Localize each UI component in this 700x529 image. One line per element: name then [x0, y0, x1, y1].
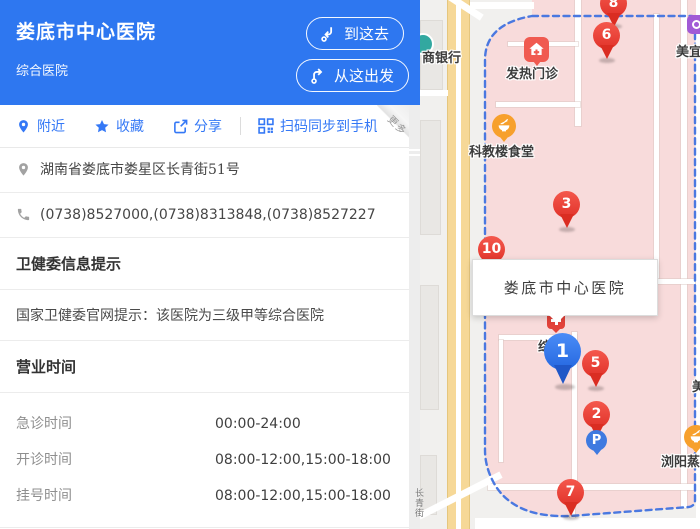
- fever-clinic-icon[interactable]: [524, 37, 549, 62]
- route-from-here-button[interactable]: 从这出发: [296, 59, 409, 92]
- campus-road: [496, 102, 580, 107]
- hours-row-clinic: 开诊时间08:00-12:00,15:00-18:00: [0, 441, 409, 477]
- map-building-block: [420, 120, 441, 235]
- store2-label[interactable]: 美: [692, 376, 700, 395]
- campus-road: [488, 484, 695, 490]
- baidu-map-poi-page: 商银行 发热门诊 科教楼食堂 美宜 美 浏阳蒸: [0, 0, 700, 529]
- health-commission-content: 国家卫健委官网提示：该医院为三级甲等综合医院: [0, 290, 409, 341]
- address-text: 湖南省娄底市娄星区长青街51号: [40, 160, 240, 180]
- route-to-here-button[interactable]: 到这去: [306, 17, 404, 50]
- bank-label[interactable]: 商银行: [422, 47, 461, 66]
- map-marker-1-current[interactable]: 1: [544, 333, 582, 387]
- side-road: [420, 90, 448, 96]
- scrollbar-notch: [409, 154, 420, 156]
- poi-title: 娄底市中心医院: [16, 17, 156, 44]
- map-marker-6[interactable]: 6: [593, 22, 621, 60]
- map-marker-5[interactable]: 5: [582, 350, 610, 388]
- bottom-road: [475, 518, 700, 529]
- hours-row-emergency: 急诊时间00:00-24:00: [0, 405, 409, 441]
- star-icon: [94, 119, 110, 134]
- top-road: [470, 2, 534, 9]
- sync-to-phone-action[interactable]: 扫码同步到手机: [258, 116, 378, 136]
- panel-body: 附近 收藏 分享: [0, 105, 409, 528]
- nearby-action[interactable]: 附近: [16, 116, 65, 136]
- yellow-road: [447, 0, 470, 529]
- map-building-block: [420, 285, 439, 410]
- favorite-action[interactable]: 收藏: [94, 116, 144, 136]
- bowl-icon: [496, 118, 512, 134]
- business-hours-title: 营业时间: [0, 341, 409, 393]
- address-pin-icon: [16, 162, 31, 177]
- panel-header: 娄底市中心医院 综合医院 到这去 从这出发: [0, 0, 420, 105]
- campus-road: [654, 14, 659, 283]
- campus-road: [499, 340, 503, 462]
- health-commission-title: 卫健委信息提示: [0, 238, 409, 290]
- phone-icon: [16, 207, 31, 222]
- hospital-infobox[interactable]: 娄底市中心医院: [472, 259, 658, 316]
- scrollbar-notch: [409, 149, 420, 151]
- street-name-label: 长青街: [412, 488, 425, 518]
- qr-code-icon: [258, 118, 274, 134]
- action-divider: [240, 117, 241, 135]
- route-to-icon: [319, 25, 337, 43]
- share-icon: [173, 119, 188, 134]
- route-from-icon: [309, 67, 327, 85]
- map-canvas[interactable]: 商银行 发热门诊 科教楼食堂 美宜 美 浏阳蒸: [420, 0, 700, 529]
- location-pin-icon: [16, 119, 31, 134]
- poi-category: 综合医院: [16, 60, 68, 79]
- panel-scrollbar[interactable]: [409, 105, 420, 529]
- parking-icon[interactable]: P: [586, 430, 607, 451]
- share-action[interactable]: 分享: [173, 116, 222, 136]
- address-row[interactable]: 湖南省娄底市娄星区长青街51号: [0, 148, 409, 193]
- phone-row[interactable]: (0738)8527000,(0738)8313848,(0738)852722…: [0, 193, 409, 238]
- house-cross-icon: [527, 40, 546, 59]
- business-hours-table: 急诊时间00:00-24:00 开诊时间08:00-12:00,15:00-18…: [0, 393, 409, 528]
- poi-detail-panel: 娄底市中心医院 综合医院 到这去 从这出发: [0, 0, 420, 529]
- fever-clinic-label[interactable]: 发热门诊: [506, 63, 558, 82]
- restaurant-label[interactable]: 浏阳蒸: [661, 451, 700, 470]
- campus-road: [575, 0, 581, 126]
- map-marker-3[interactable]: 3: [553, 191, 581, 229]
- action-bar: 附近 收藏 分享: [0, 105, 409, 148]
- canteen-label[interactable]: 科教楼食堂: [469, 141, 534, 160]
- canteen-icon[interactable]: [492, 114, 516, 138]
- store-label[interactable]: 美宜: [676, 41, 700, 60]
- map-marker-7[interactable]: 7: [557, 479, 585, 517]
- phone-text: (0738)8527000,(0738)8313848,(0738)852722…: [40, 205, 376, 225]
- more-fold[interactable]: 更多: [377, 105, 409, 145]
- bowl-icon: [688, 429, 700, 445]
- hours-row-registration: 挂号时间08:00-12:00,15:00-18:00: [0, 477, 409, 513]
- store-icon[interactable]: [687, 15, 700, 34]
